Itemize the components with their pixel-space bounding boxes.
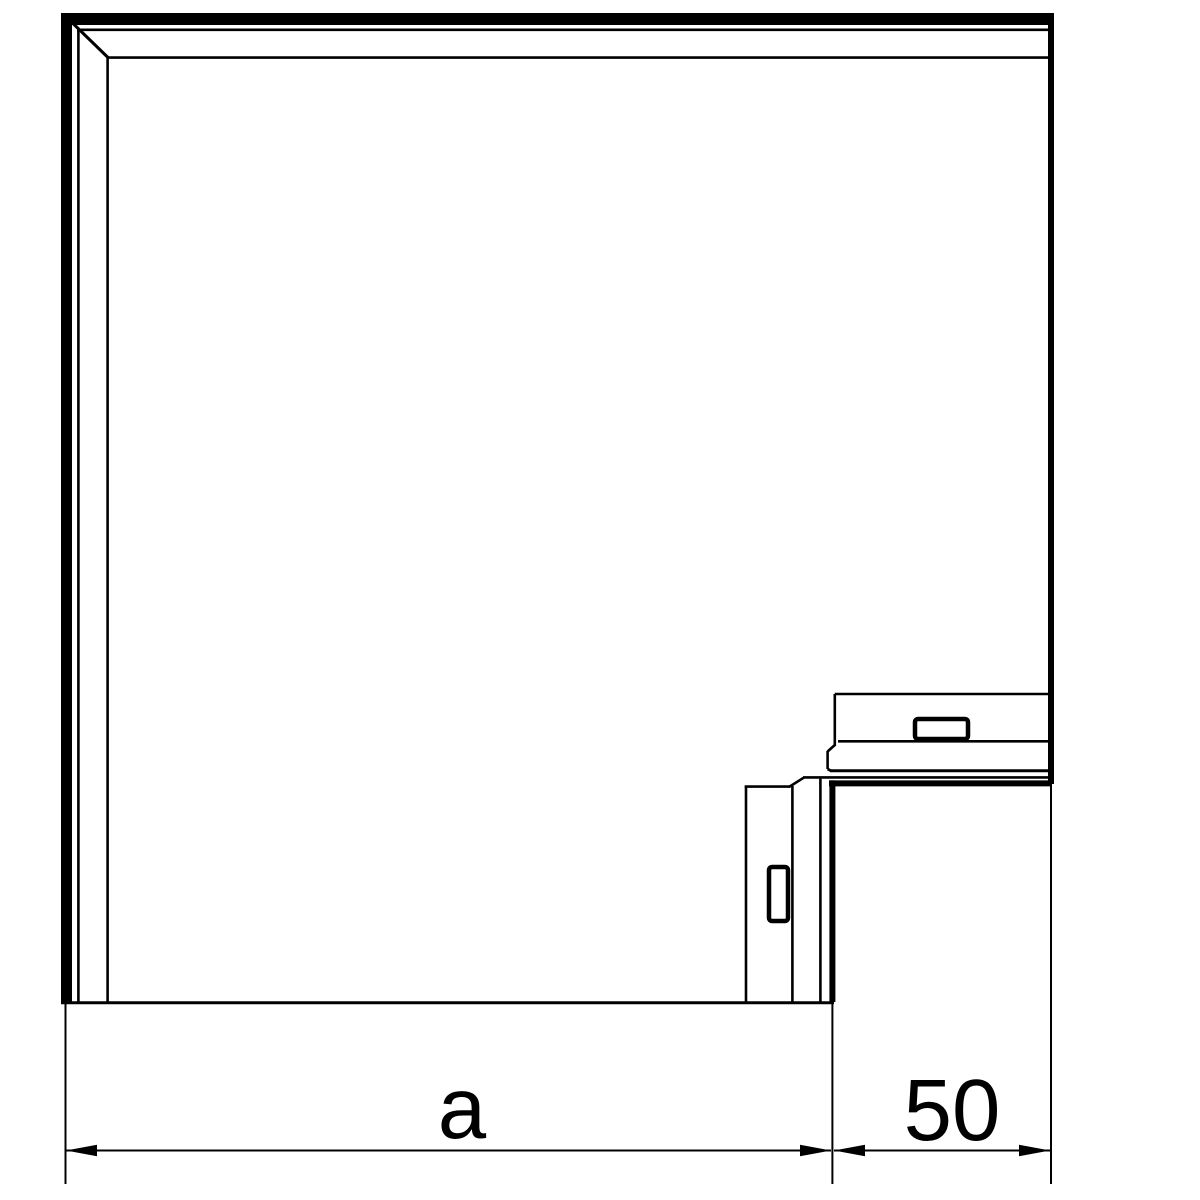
technical-drawing-canvas: a 50 bbox=[0, 0, 1200, 1200]
arrowhead-50-left bbox=[834, 1145, 865, 1156]
arrowhead-a-right bbox=[800, 1145, 831, 1156]
arrowhead-a-left bbox=[66, 1145, 97, 1156]
line-flange-left-chamfer bbox=[828, 745, 835, 752]
line-lower-piece-bevel bbox=[789, 778, 804, 787]
rect-lower-piece-latch bbox=[769, 867, 788, 921]
drawing-svg bbox=[0, 0, 1200, 1200]
dimension-label-50: 50 bbox=[872, 1067, 1032, 1154]
dimension-label-a: a bbox=[402, 1065, 522, 1152]
rect-flange-latch bbox=[915, 719, 968, 739]
